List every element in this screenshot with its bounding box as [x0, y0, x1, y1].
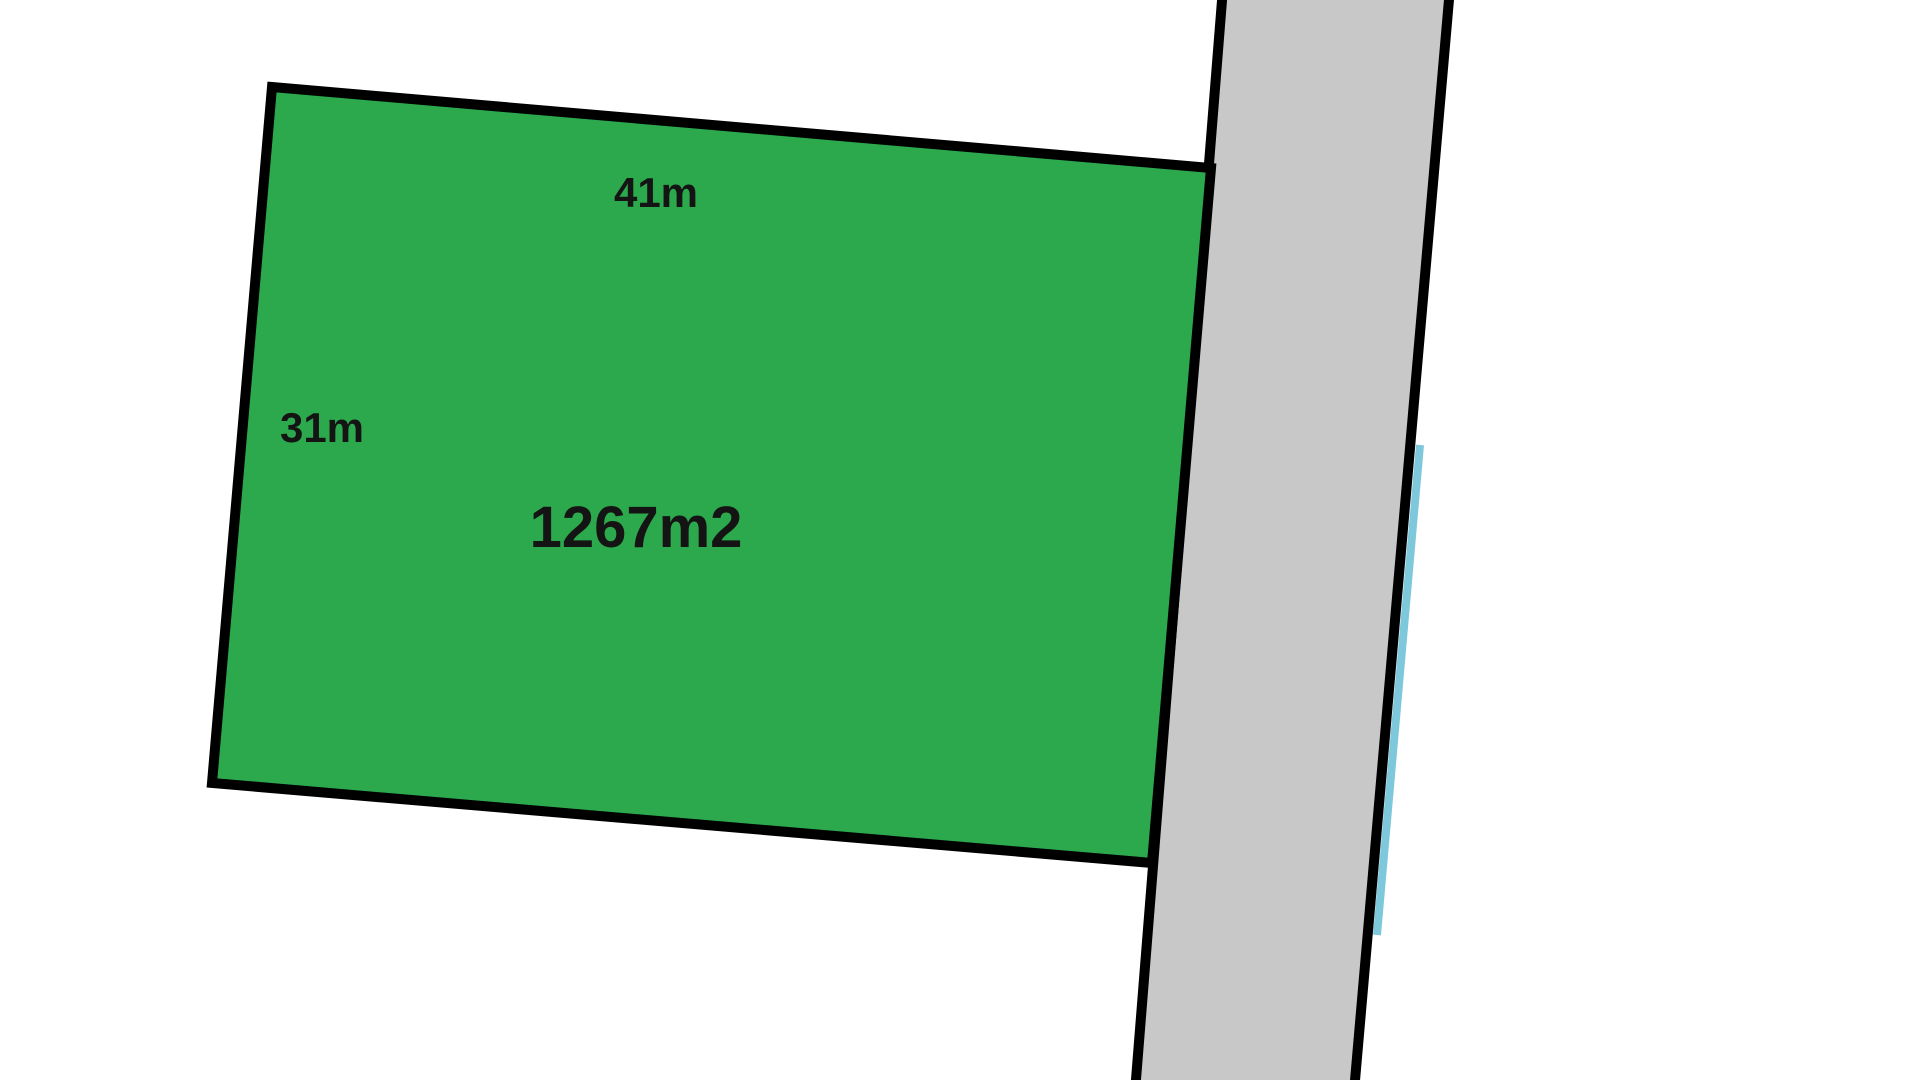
parcel-sketch-svg: 41m 31m 1267m2	[0, 0, 1920, 1080]
parcel-polygon	[212, 87, 1211, 863]
area-label: 1267m2	[530, 495, 743, 560]
parcel-map-canvas: 41m 31m 1267m2	[0, 0, 1920, 1080]
left-side-length-label: 31m	[280, 404, 364, 451]
top-side-length-label: 41m	[614, 169, 698, 216]
